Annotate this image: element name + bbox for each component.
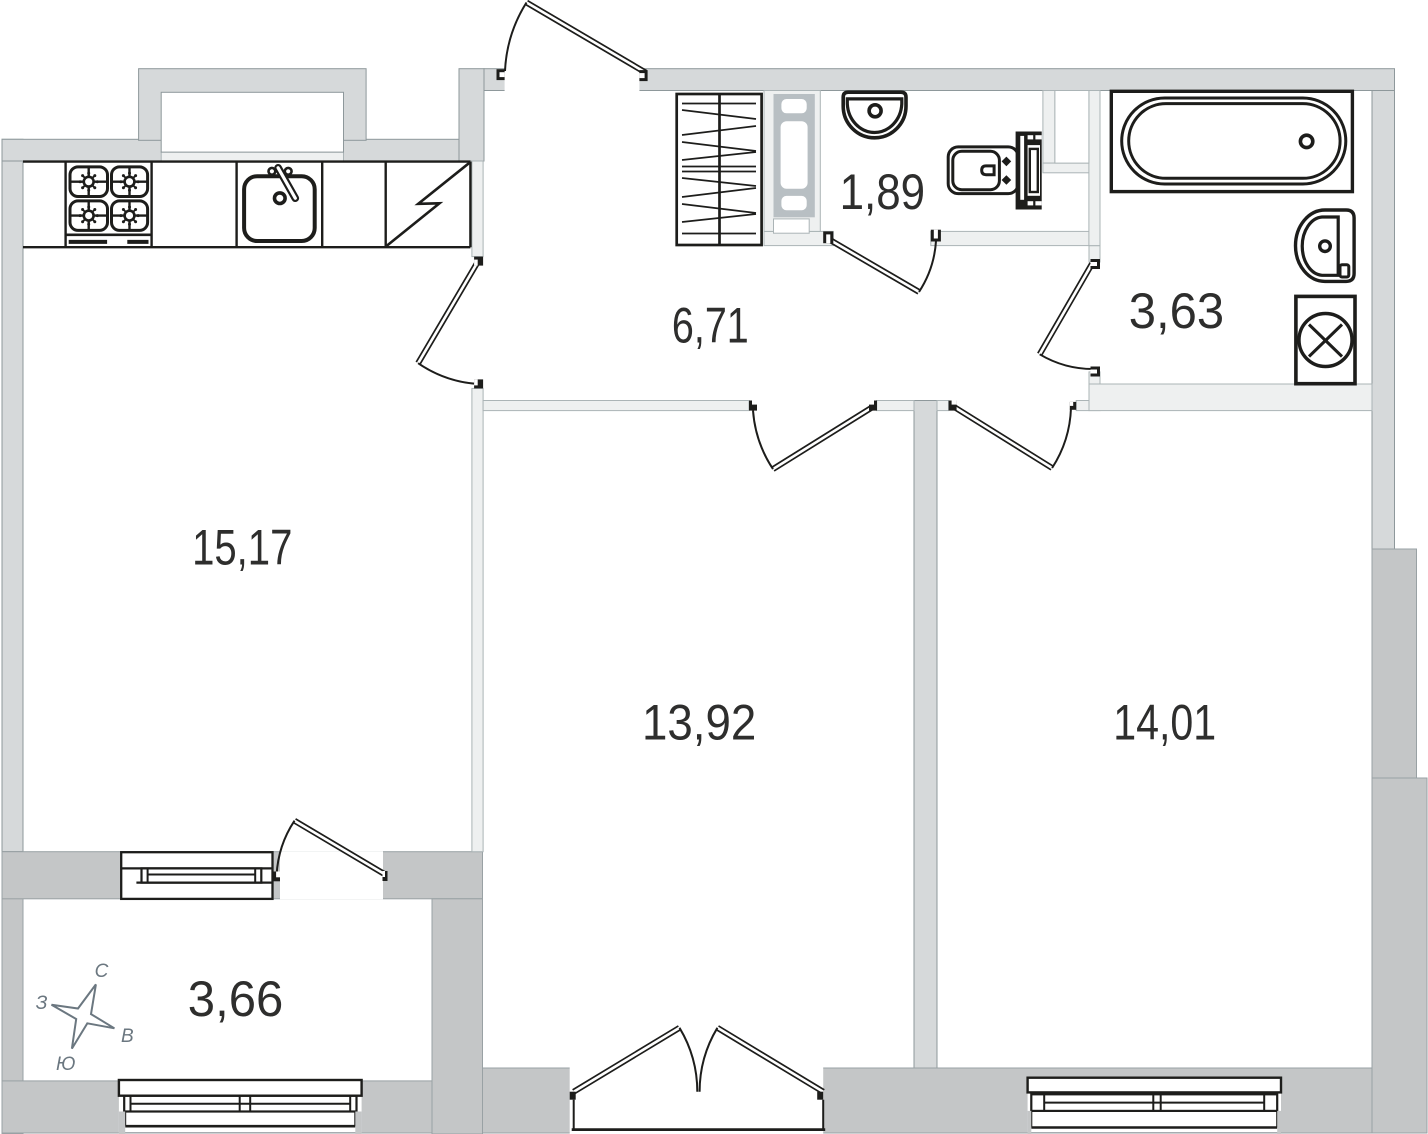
svg-text:13,92: 13,92 xyxy=(642,694,756,750)
svg-text:6,71: 6,71 xyxy=(672,297,749,353)
svg-text:3,66: 3,66 xyxy=(188,971,283,1027)
svg-text:3,63: 3,63 xyxy=(1129,283,1224,339)
svg-text:З: З xyxy=(36,993,48,1014)
svg-text:Ю: Ю xyxy=(56,1054,75,1075)
svg-text:В: В xyxy=(121,1026,134,1047)
svg-text:С: С xyxy=(95,961,109,982)
svg-text:14,01: 14,01 xyxy=(1113,695,1216,751)
svg-text:15,17: 15,17 xyxy=(192,519,292,575)
svg-text:1,89: 1,89 xyxy=(840,164,926,220)
